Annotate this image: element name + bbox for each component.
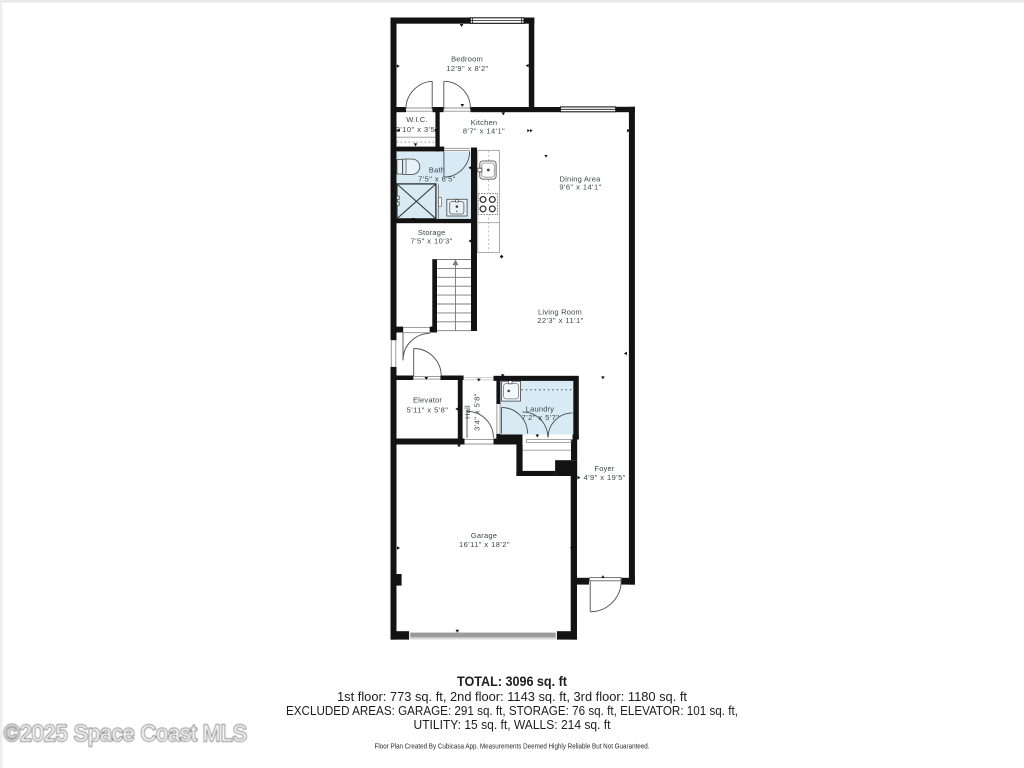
svg-text:9'6" x 14'1": 9'6" x 14'1" xyxy=(559,183,601,192)
svg-text:Kitchen: Kitchen xyxy=(471,118,497,127)
svg-text:Bedroom: Bedroom xyxy=(451,54,483,63)
svg-text:Floor Plan Created By Cubicasa: Floor Plan Created By Cubicasa App. Meas… xyxy=(375,744,650,751)
svg-text:EXCLUDED AREAS: GARAGE: 291 sq: EXCLUDED AREAS: GARAGE: 291 sq. ft, STOR… xyxy=(286,704,738,718)
svg-text:22'3" x 11'1": 22'3" x 11'1" xyxy=(537,316,583,325)
svg-text:3'4" x 5'8": 3'4" x 5'8" xyxy=(472,393,481,431)
svg-text:Garage: Garage xyxy=(471,531,497,540)
svg-text:7'5" x 10'3": 7'5" x 10'3" xyxy=(411,237,453,246)
svg-text:Hall: Hall xyxy=(463,405,472,419)
svg-text:Foyer: Foyer xyxy=(594,464,614,473)
svg-text:Elevator: Elevator xyxy=(413,395,442,404)
svg-text:7'2" x 5'7": 7'2" x 5'7" xyxy=(522,413,560,422)
svg-text:3'10" x 3'5": 3'10" x 3'5" xyxy=(396,125,438,134)
svg-text:8'7" x 14'1": 8'7" x 14'1" xyxy=(463,127,505,136)
svg-text:Living Room: Living Room xyxy=(538,307,582,316)
svg-text:5'11" x 5'8": 5'11" x 5'8" xyxy=(407,406,449,415)
svg-text:7'5" x 6'5": 7'5" x 6'5" xyxy=(418,174,456,183)
svg-text:©2025 Space Coast MLS: ©2025 Space Coast MLS xyxy=(4,720,247,746)
svg-text:W.I.C.: W.I.C. xyxy=(406,115,428,124)
svg-text:4'9" x 19'5": 4'9" x 19'5" xyxy=(584,473,626,482)
svg-text:1st floor: 773 sq. ft, 2nd flo: 1st floor: 773 sq. ft, 2nd floor: 1143 s… xyxy=(337,689,687,704)
svg-text:TOTAL: 3096 sq. ft: TOTAL: 3096 sq. ft xyxy=(457,674,567,689)
svg-text:16'11" x 18'2": 16'11" x 18'2" xyxy=(459,540,510,549)
svg-text:12'9" x 8'2": 12'9" x 8'2" xyxy=(446,64,488,73)
svg-text:UTILITY: 15 sq. ft, WALLS: 214: UTILITY: 15 sq. ft, WALLS: 214 sq. ft xyxy=(414,717,611,732)
